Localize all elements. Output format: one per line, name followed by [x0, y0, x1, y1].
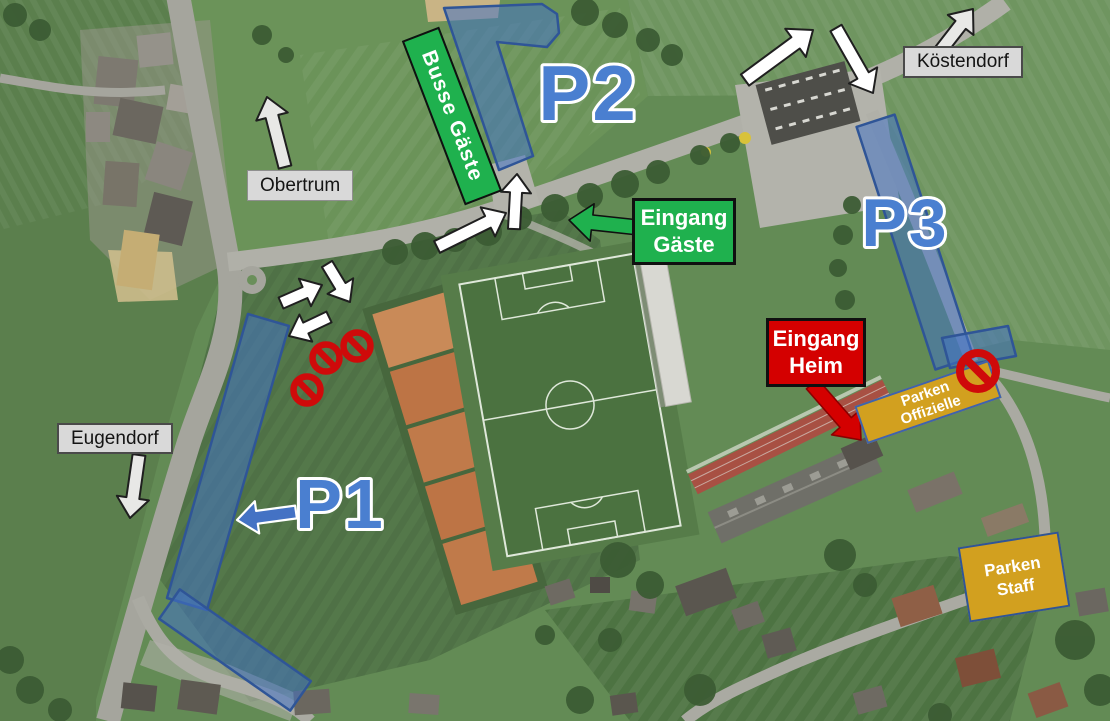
no-entry-icon — [313, 345, 340, 372]
no-entry-icon — [960, 353, 996, 389]
no-entry-layer — [0, 0, 1110, 721]
stadium-parking-map: P1 P2 P3 Busse Gäste Eingang Gäste Einga… — [0, 0, 1110, 721]
no-entry-icon — [344, 333, 371, 360]
no-entry-icon — [294, 377, 321, 404]
